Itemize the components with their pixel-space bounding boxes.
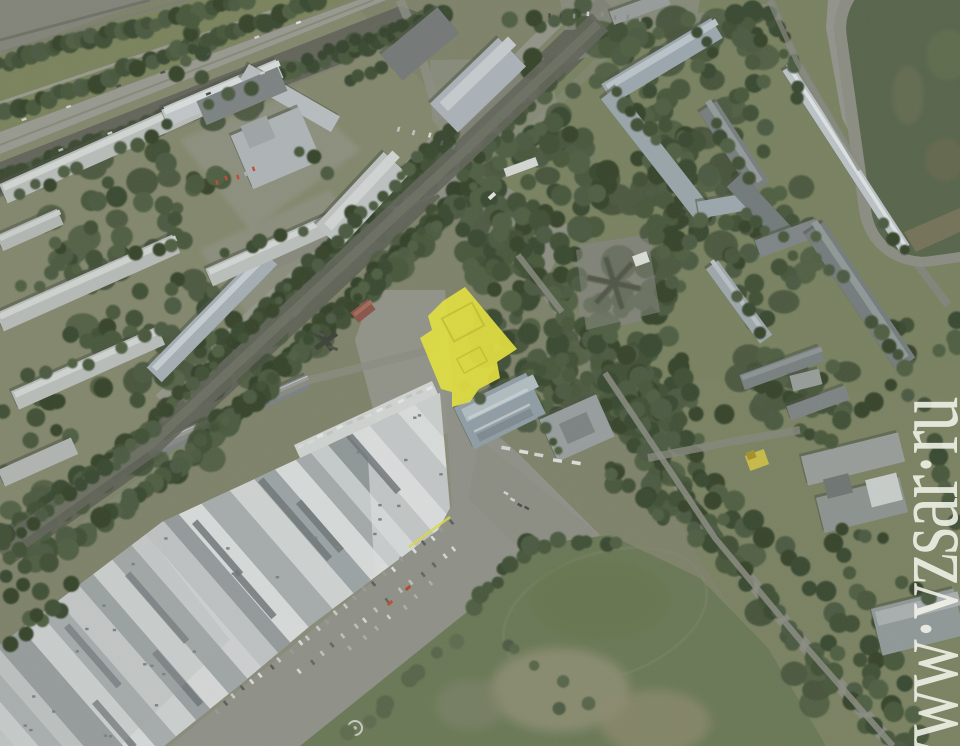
svg-text:www·vzsar·ru: www·vzsar·ru bbox=[874, 397, 960, 746]
